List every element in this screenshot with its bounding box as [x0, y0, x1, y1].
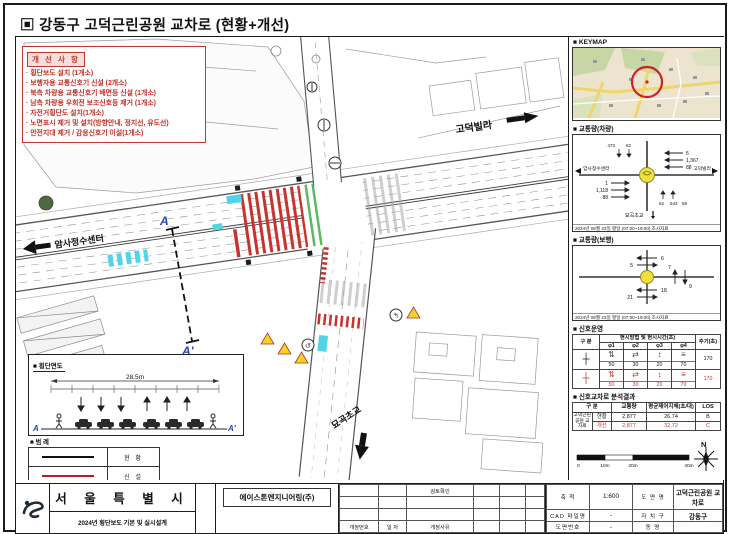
rev-reason-label: 개정사유 — [407, 521, 474, 533]
rev-no-label: 개정번호 — [340, 521, 379, 533]
agency-name: 서 울 특 별 시 — [50, 484, 195, 512]
signal-header: ■ 신호운영 — [573, 323, 724, 333]
dwg-name-value: 고덕근린공원 교차로 — [674, 485, 723, 510]
analysis-row-improved: 개선 2,877 32.72 C — [573, 421, 721, 430]
phase-diagram-icon: ↕ — [648, 370, 671, 381]
phase-diagram-icon: ≡ — [672, 350, 695, 361]
dwg-name-label: 도 면 명 — [633, 485, 674, 510]
vehicle-volume-caption: 2024년 08월 23일 평일 (07:00~19:00) 조사자료 — [573, 224, 720, 233]
xsec-a2-label: A' — [227, 424, 237, 433]
company-cell: 에이스톤엔지니어링(주) — [216, 484, 339, 533]
plan-view: A A' ↰ ↺ — [16, 37, 568, 480]
east-direction-label: 고덕빌라 — [454, 110, 539, 136]
vehicle-volume-panel: 5 1,367 88 1 1,118 88 473 62 — [572, 134, 721, 232]
phase-diagram-icon: ⇄ — [624, 370, 647, 381]
dong-label: 동 명 — [633, 522, 674, 533]
analysis-col-volume: 교통량 — [612, 403, 647, 412]
sidebar: ■ KEYMAP — [568, 37, 724, 480]
ped-bottom-vol: 18 — [661, 288, 667, 294]
cad-file-label: CAD 파일명 — [547, 509, 590, 522]
total-width-dim: 28.5m — [126, 374, 144, 381]
phase-diagram-icon: ⇅ — [600, 350, 623, 361]
district-value: 강동구 — [674, 509, 723, 522]
ped-bottom-vol: 21 — [627, 295, 633, 301]
engineering-drawing-sheet: { "title": "▣ 강동구 고덕근린공원 교차로 (현황+개선)", "… — [0, 0, 729, 534]
ped-top-vol: 6 — [661, 256, 664, 262]
legend-box: ■ 범 례 현 황 신 설 제 거 이 설 — [28, 437, 160, 480]
phase-header: φ2 — [624, 342, 648, 350]
keymap-header: ■ KEYMAP — [573, 39, 724, 46]
phase-diagram-icon: ⇄ — [624, 350, 647, 361]
analysis-header: ■ 신호교차로 분석결과 — [573, 391, 724, 401]
ped-volume-header: ■ 교통량(보행) — [573, 234, 724, 244]
improved-intersection-icon: ┼ — [573, 369, 600, 389]
sb-vol: 543 — [670, 201, 678, 206]
improvements-list: · 횡단보도 설치 (1개소) · 보행자용 교통신호기 신설 (2개소) · … — [26, 69, 202, 139]
cycle-value: 170 — [696, 369, 721, 389]
section-label-a: A — [159, 214, 169, 228]
agency-cell: 서 울 특 별 시 2024년 횡단보도 기본 및 실시설계 — [50, 484, 196, 533]
cycle-value: 170 — [696, 350, 721, 370]
east-arrow-icon — [506, 115, 525, 122]
improvement-item: · 보행자용 교통신호기 신설 (2개소) — [26, 79, 202, 89]
tree-icon — [39, 196, 53, 210]
ped-volume-panel: 6 5 7 9 18 21 2024년 08월 23일 평일 (07:00~19… — [572, 245, 721, 321]
sheet-border: ▣ 강동구 고덕근린공원 교차로 (현황+개선) — [3, 3, 727, 532]
east-mini-arrow — [712, 168, 718, 174]
legend-header: ■ 범 례 — [30, 437, 160, 446]
south-arrow-icon — [353, 432, 371, 461]
phase-header: φ3 — [648, 342, 672, 350]
wb-through-vol: 1,367 — [686, 158, 699, 164]
legend-table: 현 황 신 설 제 거 이 설 — [28, 447, 160, 480]
revision-table: 검토확인 개정번호 일 자 개정사유 — [339, 484, 546, 533]
signal-cycle-header: 주기(초) — [696, 335, 721, 350]
drawing-info-table: 축 척 1:600 도 면 명 고덕근린공원 교차로 CAD 파일명 - 자 치… — [546, 484, 723, 533]
west-mini-arrow — [575, 168, 581, 174]
svg-text:10m: 10m — [600, 463, 609, 469]
improvement-item: · 노면표시 제거 및 설치(방향안내, 정지선, 유도선) — [26, 119, 202, 129]
svg-text:고덕빌라: 고덕빌라 — [455, 118, 494, 136]
analysis-table: 구 분 교통량 평균제어지체(초/대) LOS 고덕근린공원 교차로 현황 2,… — [572, 402, 721, 431]
ped-volume-caption: 2024년 08월 23일 평일 (07:00~19:00) 조사자료 — [573, 313, 720, 322]
dong-value — [674, 522, 723, 533]
legend-line-new — [42, 475, 94, 477]
cad-file-value: - — [590, 509, 633, 522]
analysis-col-gubun: 구 분 — [573, 403, 612, 412]
phase-header: φ1 — [600, 342, 624, 350]
west-mini-label: 암사정수센터 — [583, 165, 609, 172]
title-block: 서 울 특 별 시 2024년 횡단보도 기본 및 실시설계 에이스톤엔지니어링… — [15, 483, 724, 534]
improvement-item: · 북측 차량용 교통신호기 배면등 신설 (1개소) — [26, 89, 202, 99]
rev-date-label: 일 자 — [379, 521, 407, 533]
svg-text:0: 0 — [577, 463, 580, 469]
drawing-frame: A A' ↰ ↺ — [15, 36, 724, 484]
cross-section-drawing: 28.5m — [29, 373, 239, 437]
signal-gubun-header: 구 분 — [573, 335, 600, 350]
vehicle-volume-header: ■ 교통량(차량) — [573, 123, 724, 133]
keymap-map — [573, 48, 720, 118]
nb-vol: 62 — [626, 143, 632, 148]
svg-text:20m: 20m — [628, 463, 637, 469]
analysis-col-delay: 평균제어지체(초/대) — [647, 403, 696, 412]
project-name: 2024년 횡단보도 기본 및 실시설계 — [50, 512, 195, 533]
cross-section-inset: ■ 횡단면도 28.5m — [28, 354, 244, 436]
cross-section-header: ■ 횡단면도 — [33, 360, 65, 372]
eb-arrows — [611, 181, 629, 199]
improvement-item: · 남측 차량용 우회전 보조신호등 제거 (1개소) — [26, 99, 202, 109]
nb-vol: 473 — [607, 143, 615, 148]
wb-right-vol: 88 — [686, 165, 692, 171]
scale-label: 축 척 — [547, 485, 590, 510]
keymap-panel — [572, 47, 721, 121]
wb-left-vol: 5 — [686, 151, 689, 157]
south-mini-label: 묘곡초교 — [625, 213, 644, 219]
improvement-item: · 자전거횡단도 설치(1개소) — [26, 109, 202, 119]
north-arrow: N — [692, 439, 720, 478]
phase-diagram-icon: ⇅ — [600, 370, 623, 381]
analysis-stub: 고덕근린공원 교차로 — [573, 412, 593, 431]
improvement-item: · 안전지대 제거 / 감응신호기 이설(1개소) — [26, 129, 202, 139]
analysis-row-existing: 고덕근린공원 교차로 현황 2,877 26.74 B — [573, 412, 721, 421]
eb-through-vol: 1,118 — [596, 188, 608, 194]
signal-colgroup-header: 현시방법 및 현시시간(초) — [600, 335, 696, 343]
phase-diagram-icon: ≡ — [672, 370, 695, 381]
seoul-logo — [16, 484, 50, 533]
company-name: 에이스톤엔지니어링(주) — [223, 488, 331, 507]
existing-intersection-icon: ┼ — [573, 350, 600, 370]
sb-arrows — [661, 191, 675, 199]
xsec-a-label: A — [32, 424, 39, 433]
analysis-col-los: LOS — [696, 403, 721, 412]
east-mini-label: 고덕빌라 — [693, 165, 711, 172]
phase-header: φ4 — [672, 342, 696, 350]
eb-right-vol: 88 — [602, 195, 608, 201]
lane-direction-arrows — [78, 397, 190, 411]
empty-cell — [196, 484, 216, 533]
legend-row: 현 황 — [29, 448, 160, 467]
car-icons — [75, 419, 204, 430]
legend-row: 신 설 — [29, 467, 160, 481]
district-label: 자 치 구 — [633, 509, 674, 522]
turn-sign-icon: ↰ — [393, 312, 399, 320]
improvement-item: · 횡단보도 설치 (1개소) — [26, 69, 202, 79]
review-label: 검토확인 — [407, 485, 474, 497]
signal-row-improved: ┼ ⇅50 ⇄30 ↕20 ≡70 170 — [573, 369, 721, 389]
sb-vol: 62 — [659, 201, 665, 206]
dwg-no-label: 도면번호 — [547, 522, 590, 533]
phase-diagram-icon: ↕ — [648, 350, 671, 361]
uturn-sign-icon: ↺ — [305, 343, 311, 350]
vehicle-volume-diagram: 5 1,367 88 1 1,118 88 473 62 — [573, 135, 720, 219]
ped-top-vol: 5 — [630, 263, 633, 269]
ped-volume-diagram: 6 5 7 9 18 21 — [573, 246, 720, 308]
page-title: ▣ 강동구 고덕근린공원 교차로 (현황+개선) — [20, 14, 289, 35]
signal-row-existing: ┼ ⇅50 ⇄30 ↕20 ≡70 170 — [573, 350, 721, 370]
ped-right-vol: 7 — [668, 265, 671, 271]
south-mini-arrow — [651, 211, 655, 219]
intersection-marker — [641, 271, 654, 284]
eb-left-vol: 1 — [605, 181, 608, 187]
wb-arrows — [665, 151, 683, 169]
scale-bar: 0 10m 20m 40m — [575, 453, 695, 474]
improvements-header: 개 선 사 항 — [27, 52, 85, 67]
dwg-no-value: - — [590, 522, 633, 533]
signal-table: 구 분 현시방법 및 현시시간(초) 주기(초) φ1 φ2 φ3 φ4 ┼ ⇅… — [572, 334, 721, 389]
ped-right-vol: 9 — [689, 284, 692, 290]
sb-vol: 59 — [682, 201, 688, 206]
improvements-box: 개 선 사 항 · 횡단보도 설치 (1개소) · 보행자용 교통신호기 신설 … — [22, 46, 206, 143]
legend-line-existing — [42, 456, 94, 458]
nb-arrows — [617, 149, 631, 157]
scale-value: 1:600 — [590, 485, 633, 510]
